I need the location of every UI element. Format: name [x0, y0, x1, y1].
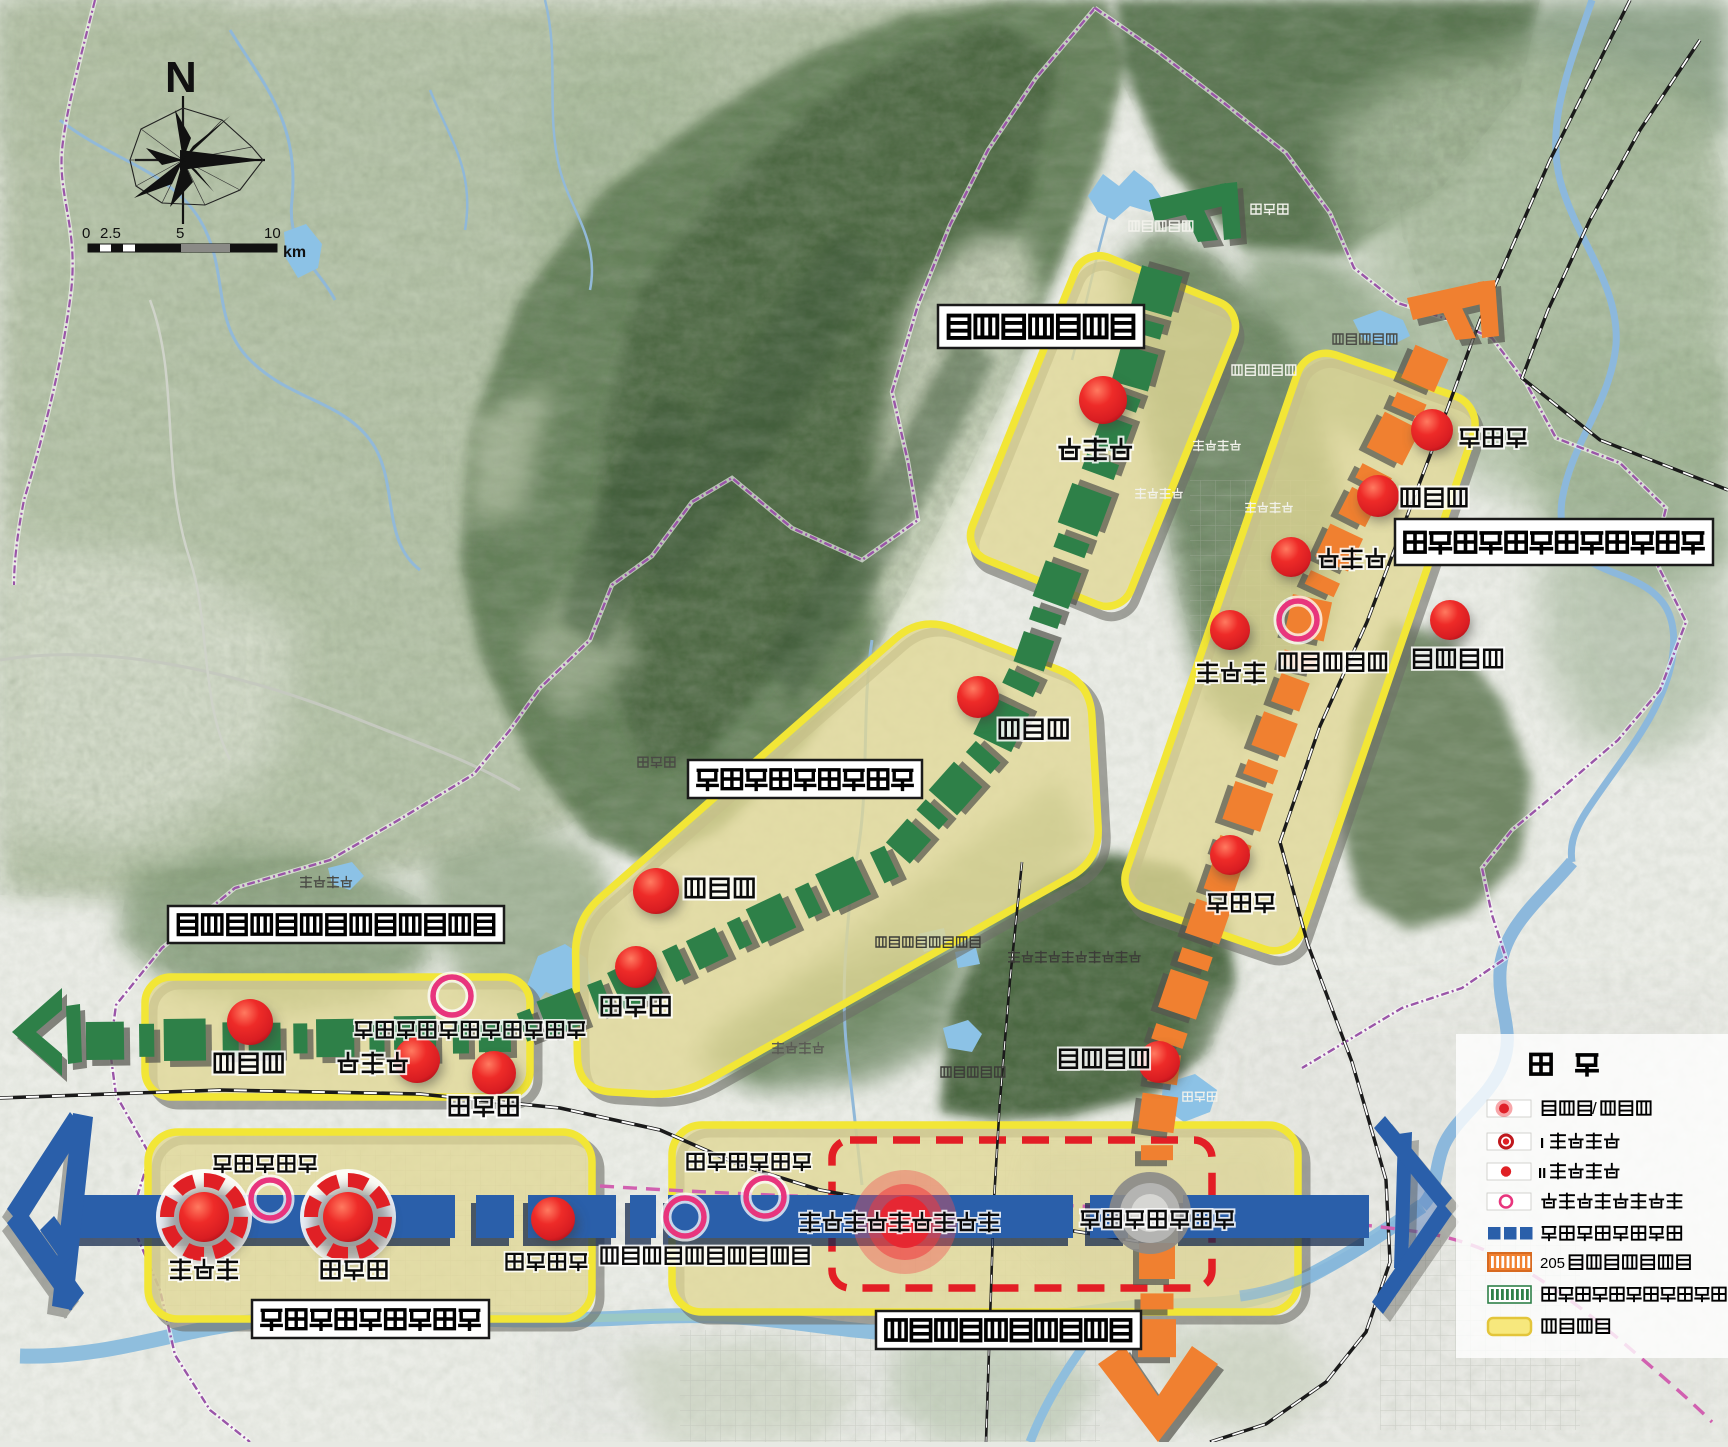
svg-text:10: 10 — [264, 225, 281, 242]
svg-text:km: km — [283, 244, 306, 261]
svg-text:N: N — [165, 53, 197, 102]
svg-text:/: / — [1592, 1099, 1597, 1118]
svg-text:II: II — [1538, 1165, 1546, 1182]
svg-text:5: 5 — [176, 225, 184, 242]
svg-text:2.5: 2.5 — [100, 225, 121, 242]
svg-text:205: 205 — [1540, 1255, 1565, 1272]
svg-text:I: I — [1540, 1135, 1544, 1152]
svg-text:0: 0 — [82, 225, 90, 242]
